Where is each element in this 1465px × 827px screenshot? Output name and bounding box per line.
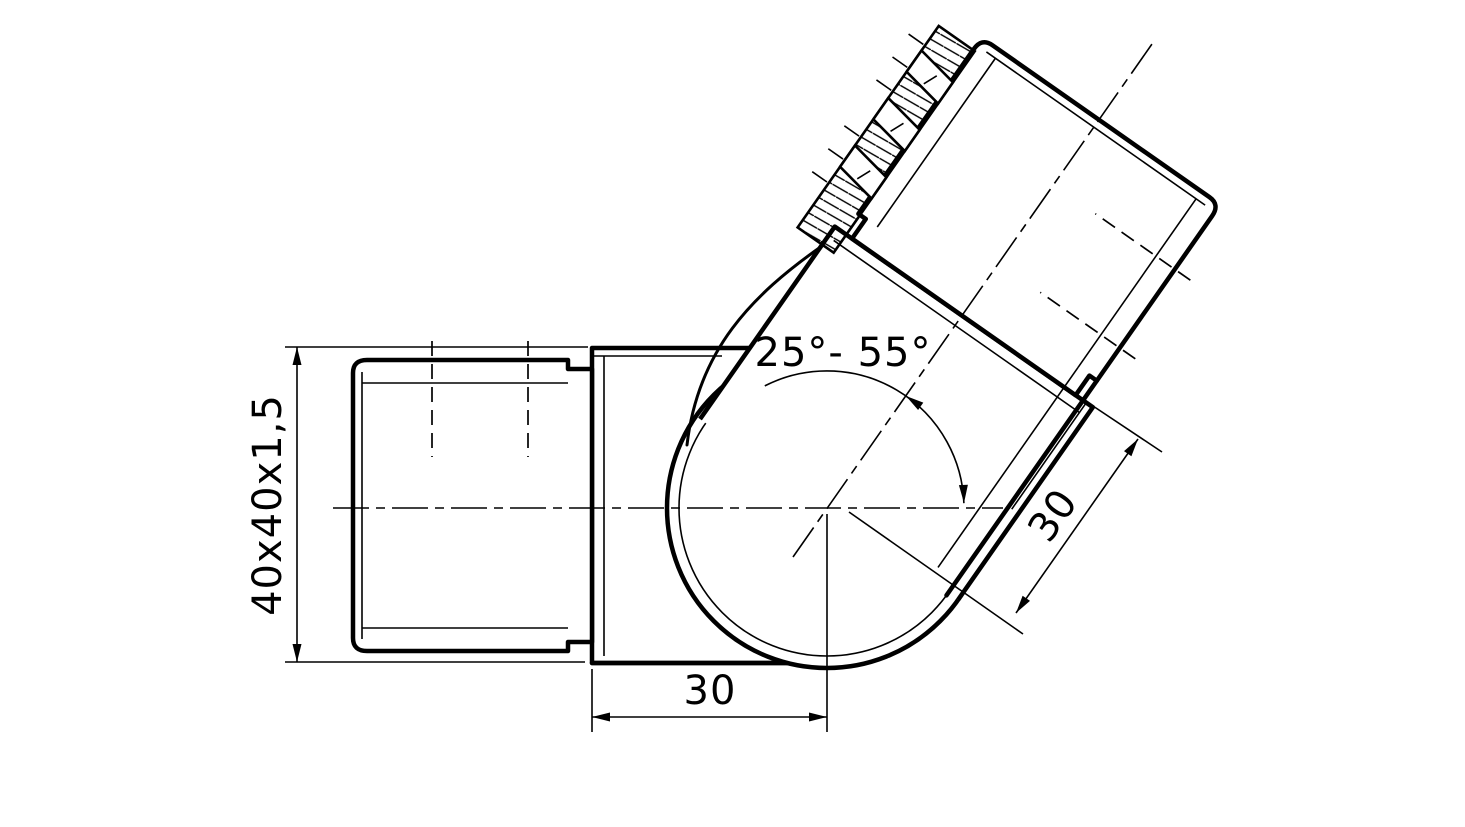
dim-angle-range-label: 25°- 55° [755, 330, 932, 376]
serration-tick [828, 149, 843, 159]
serration-tick [812, 172, 827, 182]
extension-line [1093, 406, 1162, 452]
serration-tick [844, 126, 859, 136]
dimension-arrow-icon [1124, 439, 1138, 456]
dimension-arrow-icon [809, 713, 827, 722]
dim-tube-section-label: 40x40x1,5 [245, 394, 291, 616]
technical-drawing-canvas: 40x40x1,5 30 30 25°- 55° [0, 0, 1465, 827]
serration-tick [893, 57, 908, 67]
serration-tick [876, 80, 891, 90]
dim-depth-bottom-label: 30 [684, 668, 737, 714]
dimension-arrow-icon [592, 713, 610, 722]
dimension-arrow-icon [293, 347, 302, 365]
connector-drawing: 40x40x1,5 30 30 25°- 55° [0, 0, 1465, 827]
serration-tick [909, 34, 924, 44]
dimension-arrow-icon [293, 644, 302, 662]
dimension-arrow-icon [1016, 596, 1030, 613]
